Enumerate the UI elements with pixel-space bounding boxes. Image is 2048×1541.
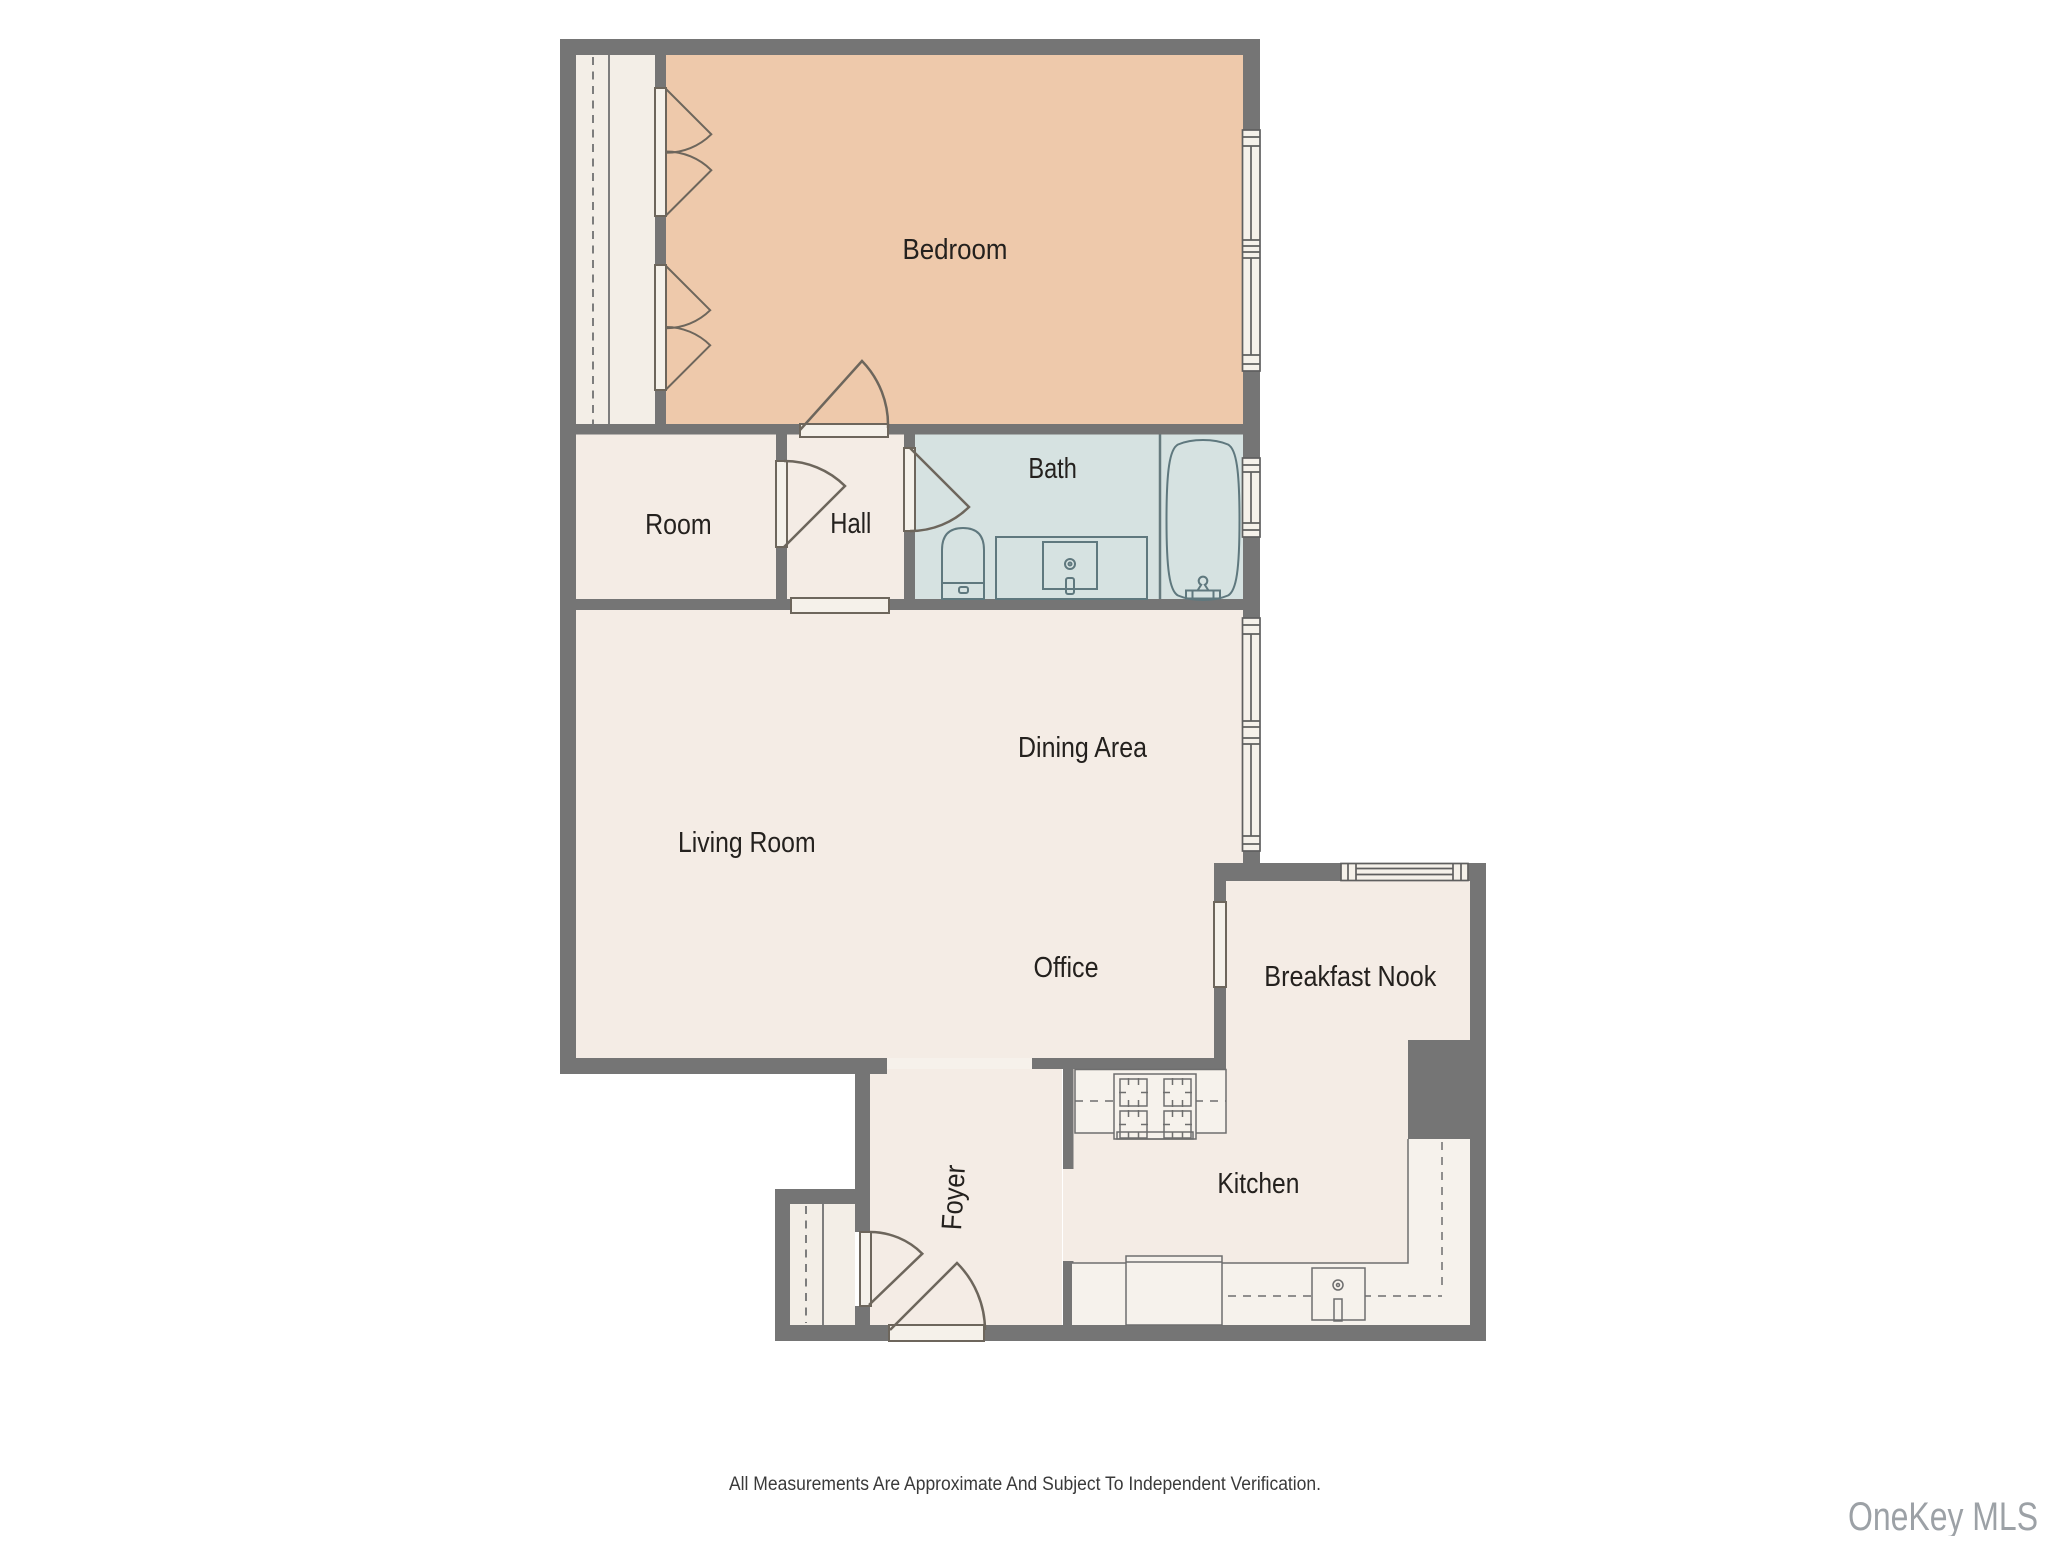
svg-text:Dining Area: Dining Area bbox=[1018, 732, 1147, 764]
svg-text:All Measurements Are Approxima: All Measurements Are Approximate And Sub… bbox=[729, 1474, 1321, 1495]
svg-text:Bedroom: Bedroom bbox=[903, 234, 1008, 266]
svg-text:Foyer: Foyer bbox=[936, 1164, 972, 1231]
svg-text:Kitchen: Kitchen bbox=[1217, 1168, 1299, 1200]
svg-text:Bath: Bath bbox=[1028, 453, 1077, 485]
svg-text:Hall: Hall bbox=[830, 508, 871, 540]
svg-text:Breakfast Nook: Breakfast Nook bbox=[1264, 961, 1437, 993]
svg-text:Living Room: Living Room bbox=[678, 827, 816, 859]
svg-text:OneKey MLS: OneKey MLS bbox=[1848, 1495, 2038, 1536]
svg-text:Office: Office bbox=[1034, 952, 1099, 984]
svg-text:Room: Room bbox=[645, 509, 712, 541]
